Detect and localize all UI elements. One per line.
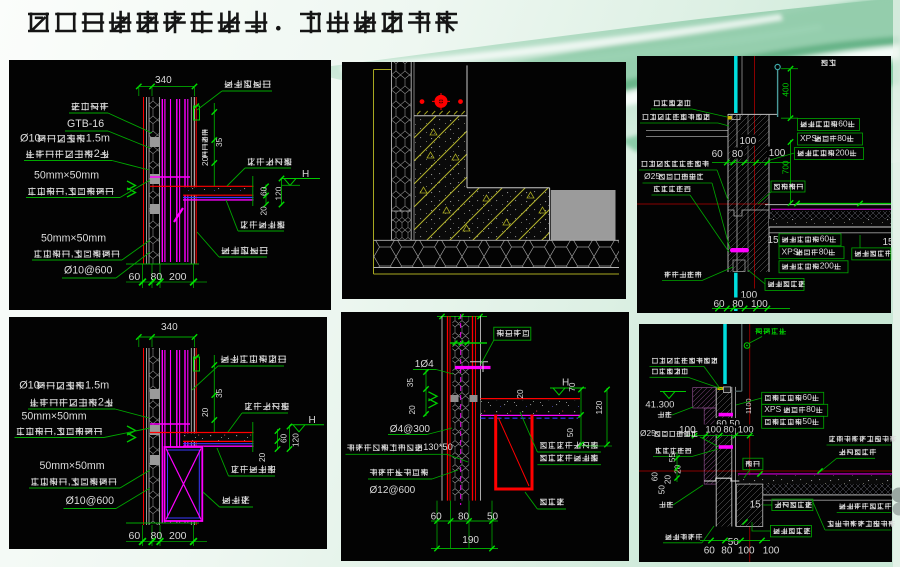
svg-text:50: 50 xyxy=(487,512,499,523)
svg-text:60: 60 xyxy=(129,530,141,542)
svg-text:20: 20 xyxy=(407,405,417,415)
svg-text:190: 190 xyxy=(462,535,479,546)
svg-text:55: 55 xyxy=(667,453,677,463)
svg-text:50mm×50mm: 50mm×50mm xyxy=(40,460,105,472)
svg-text:Ø12@600: Ø12@600 xyxy=(370,485,416,496)
svg-text:,: , xyxy=(53,426,56,437)
svg-text:Ø10@600: Ø10@600 xyxy=(64,264,113,276)
svg-text:100: 100 xyxy=(740,136,757,147)
svg-text:1.5m: 1.5m xyxy=(85,380,109,392)
svg-text:700: 700 xyxy=(781,160,791,174)
svg-text:80: 80 xyxy=(458,512,470,523)
svg-text:340: 340 xyxy=(155,75,172,86)
svg-text:50mm×50mm: 50mm×50mm xyxy=(22,411,87,423)
svg-text:100: 100 xyxy=(769,148,786,159)
svg-text:20: 20 xyxy=(259,206,269,216)
svg-text:2: 2 xyxy=(94,148,100,160)
svg-text:60: 60 xyxy=(431,512,443,523)
svg-text:41.300: 41.300 xyxy=(645,400,674,411)
svg-text:XPS: XPS xyxy=(764,404,781,414)
svg-text:80: 80 xyxy=(723,425,734,436)
svg-text:20: 20 xyxy=(662,474,672,484)
svg-text:20: 20 xyxy=(257,452,267,462)
svg-text:60: 60 xyxy=(259,186,269,196)
svg-text:200: 200 xyxy=(169,271,187,283)
svg-text:130*50: 130*50 xyxy=(423,441,453,452)
svg-text:120: 120 xyxy=(291,433,301,447)
svg-text:60: 60 xyxy=(649,472,659,482)
svg-text:GTB-16: GTB-16 xyxy=(67,118,104,130)
svg-text:Ø25: Ø25 xyxy=(640,428,656,438)
svg-text:120: 120 xyxy=(274,186,284,200)
svg-text:80: 80 xyxy=(806,404,816,414)
svg-text:50mm×50mm: 50mm×50mm xyxy=(34,169,99,181)
svg-text:80: 80 xyxy=(732,149,744,160)
svg-text:20: 20 xyxy=(515,389,525,399)
svg-text:60: 60 xyxy=(712,149,724,160)
svg-text:60: 60 xyxy=(802,392,812,402)
svg-text:35: 35 xyxy=(214,388,224,398)
svg-text:80: 80 xyxy=(721,546,733,557)
svg-text:70: 70 xyxy=(567,382,577,392)
svg-text:60: 60 xyxy=(704,546,716,557)
svg-text:20: 20 xyxy=(200,156,210,166)
svg-text:35: 35 xyxy=(214,137,224,147)
svg-text:100: 100 xyxy=(738,546,755,557)
svg-text:15: 15 xyxy=(750,500,762,511)
svg-text:35: 35 xyxy=(405,378,415,388)
svg-text:60: 60 xyxy=(129,271,141,283)
svg-text:200: 200 xyxy=(169,530,187,542)
svg-text:20: 20 xyxy=(200,407,210,417)
svg-text:80: 80 xyxy=(837,133,847,143)
svg-text:Ø4@300: Ø4@300 xyxy=(390,424,431,435)
svg-text:15: 15 xyxy=(768,235,780,246)
svg-text:,: , xyxy=(65,186,68,197)
svg-text:Ø10@600: Ø10@600 xyxy=(66,495,115,507)
svg-text:1.5m: 1.5m xyxy=(86,133,110,145)
svg-text:200: 200 xyxy=(835,147,849,157)
svg-text:50: 50 xyxy=(802,416,812,426)
svg-text:Ø25: Ø25 xyxy=(644,171,660,181)
svg-text:400: 400 xyxy=(781,82,791,96)
svg-text:1Ø4: 1Ø4 xyxy=(415,359,434,370)
svg-text:,: , xyxy=(68,477,71,488)
svg-text:200: 200 xyxy=(820,261,834,271)
svg-text:2: 2 xyxy=(98,397,104,409)
svg-text:100: 100 xyxy=(763,546,780,557)
svg-text:120: 120 xyxy=(594,400,604,414)
svg-text:50mm×50mm: 50mm×50mm xyxy=(41,232,106,244)
svg-text:50: 50 xyxy=(565,428,575,438)
svg-text:60: 60 xyxy=(838,118,848,128)
svg-text:XPS: XPS xyxy=(782,247,799,257)
svg-text:XPS: XPS xyxy=(800,133,817,143)
svg-text:60: 60 xyxy=(279,433,289,443)
svg-text:80: 80 xyxy=(819,247,829,257)
svg-text:60: 60 xyxy=(820,234,830,244)
svg-text:20: 20 xyxy=(673,464,683,474)
svg-text:340: 340 xyxy=(161,322,178,333)
svg-text:,: , xyxy=(71,249,74,260)
svg-text:50: 50 xyxy=(657,485,667,495)
svg-text:15: 15 xyxy=(883,237,895,248)
